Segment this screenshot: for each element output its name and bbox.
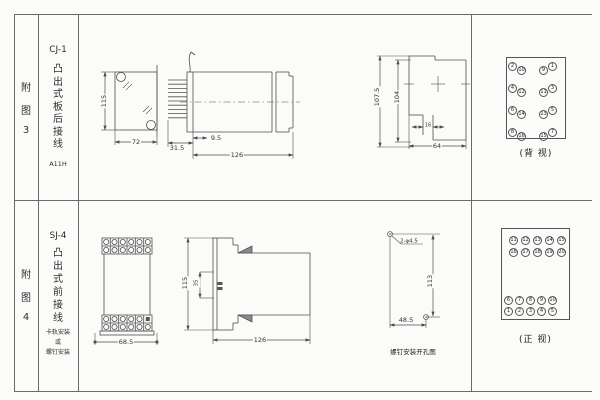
dim-9-5: 9.5: [211, 135, 221, 142]
table-divider-middle: [14, 200, 592, 201]
dim-35: 35: [194, 279, 200, 288]
terminal-11: 11: [539, 88, 548, 97]
terminal-5: 5: [548, 106, 557, 115]
terminal-row-11-15: 1112131415: [509, 236, 566, 245]
dim-126: 126: [230, 152, 244, 159]
datasheet-page: 附 图 3 CJ-1 凸 出 式 板 后 接 线 A11H 115 72: [0, 0, 600, 400]
sj4-hole-diagram: [373, 223, 468, 363]
cj1-terminal-panel-back: 2468 10121416 9111315 1357: [506, 57, 566, 139]
terminal-9: 9: [537, 296, 546, 305]
terminal-row-6-10: 678910: [504, 296, 557, 305]
fig3-type-label: 凸 出 式 板 后 接 线: [38, 64, 78, 152]
terminal-20: 20: [557, 248, 566, 257]
sj4-terminal-panel-front: 1112131415 1617181920 678910 12345: [501, 228, 570, 320]
terminal-12: 12: [517, 88, 526, 97]
fig3-model: CJ-1: [49, 45, 67, 55]
table-border-bottom: [14, 391, 592, 392]
dim-126-sj4: 126: [253, 337, 267, 344]
terminal-11: 11: [509, 236, 518, 245]
terminal-2: 2: [515, 307, 524, 316]
terminal-4: 4: [537, 307, 546, 316]
dim-115: 115: [101, 94, 108, 108]
terminal-1: 1: [548, 62, 557, 71]
terminal-col-left-outer: 2468: [508, 62, 517, 137]
dim-107-5: 107.5: [374, 87, 381, 108]
fig4-char: 附: [21, 266, 31, 281]
terminal-14: 14: [545, 236, 554, 245]
hole-note: 2-φ4.5: [400, 239, 418, 245]
table-border-top: [14, 14, 592, 15]
dim-72: 72: [131, 139, 141, 146]
dim-48-5: 48.5: [399, 317, 413, 324]
terminal-col-right-outer: 1357: [548, 62, 557, 137]
sj4-side-view-drawing: [178, 232, 318, 350]
fig3-code-label: A11H: [38, 160, 78, 168]
terminal-6: 6: [508, 106, 517, 115]
terminal-13: 13: [533, 236, 542, 245]
table-divider-col2: [78, 14, 79, 392]
fig4-char: 图: [21, 289, 31, 304]
hole-diagram-caption: 螺钉安装开孔图: [384, 346, 442, 356]
table-border-left: [14, 14, 15, 392]
terminal-row-16-20: 1617181920: [509, 248, 566, 257]
terminal-16: 16: [517, 132, 526, 141]
terminal-1: 1: [504, 307, 513, 316]
terminal-col-left-inner: 10121416: [517, 66, 526, 141]
terminal-7: 7: [548, 128, 557, 137]
terminal-8: 8: [526, 296, 535, 305]
terminal-14: 14: [517, 110, 526, 119]
terminal-6: 6: [504, 296, 513, 305]
fig3-code: A11H: [49, 160, 67, 168]
terminal-13: 13: [539, 110, 548, 119]
terminal-row-1-5: 12345: [504, 307, 557, 316]
terminal-16: 16: [509, 248, 518, 257]
terminal-10: 10: [548, 296, 557, 305]
fig3-char: 附: [21, 79, 31, 94]
dim-113: 113: [427, 274, 434, 288]
fig3-char: 图: [21, 102, 31, 117]
terminal-col-right-inner: 9111315: [539, 66, 548, 141]
terminal-17: 17: [521, 248, 530, 257]
terminal-4: 4: [508, 84, 517, 93]
terminal-12: 12: [521, 236, 530, 245]
table-divider-col3: [471, 14, 472, 392]
back-view-caption: (背 视): [502, 146, 570, 159]
fig3-index-label: 附 图 3: [14, 79, 38, 136]
dim-31-5: 31.5: [170, 145, 184, 152]
terminal-10: 10: [517, 66, 526, 75]
fig4-index-label: 附 图 4: [14, 266, 38, 323]
terminal-3: 3: [548, 84, 557, 93]
terminal-19: 19: [545, 248, 554, 257]
terminal-5: 5: [548, 307, 557, 316]
fig4-char: 4: [23, 312, 29, 323]
dim-104: 104: [394, 90, 401, 104]
dim-115-sj4: 115: [182, 276, 189, 290]
dim-68-5: 68.5: [118, 339, 134, 346]
fig3-model-label: CJ-1: [38, 45, 78, 55]
terminal-15: 15: [557, 236, 566, 245]
terminal-8: 8: [508, 128, 517, 137]
terminal-18: 18: [533, 248, 542, 257]
fig4-model: SJ-4: [49, 231, 66, 241]
terminal-3: 3: [526, 307, 535, 316]
terminal-2: 2: [508, 62, 517, 71]
fig4-type-label: 凸 出 式 前 接 线: [38, 247, 78, 325]
terminal-15: 15: [539, 132, 548, 141]
fig3-char: 3: [23, 125, 29, 136]
dim-16: 16: [424, 124, 432, 129]
fig4-model-label: SJ-4: [38, 231, 78, 241]
terminal-9: 9: [539, 66, 548, 75]
front-view-caption: (正 视): [501, 332, 570, 345]
dim-64: 64: [432, 143, 442, 150]
terminal-7: 7: [515, 296, 524, 305]
fig4-mount-note: 卡轨安装 或 螺钉安装: [38, 328, 78, 358]
sj4-front-view-drawing: [93, 232, 165, 350]
